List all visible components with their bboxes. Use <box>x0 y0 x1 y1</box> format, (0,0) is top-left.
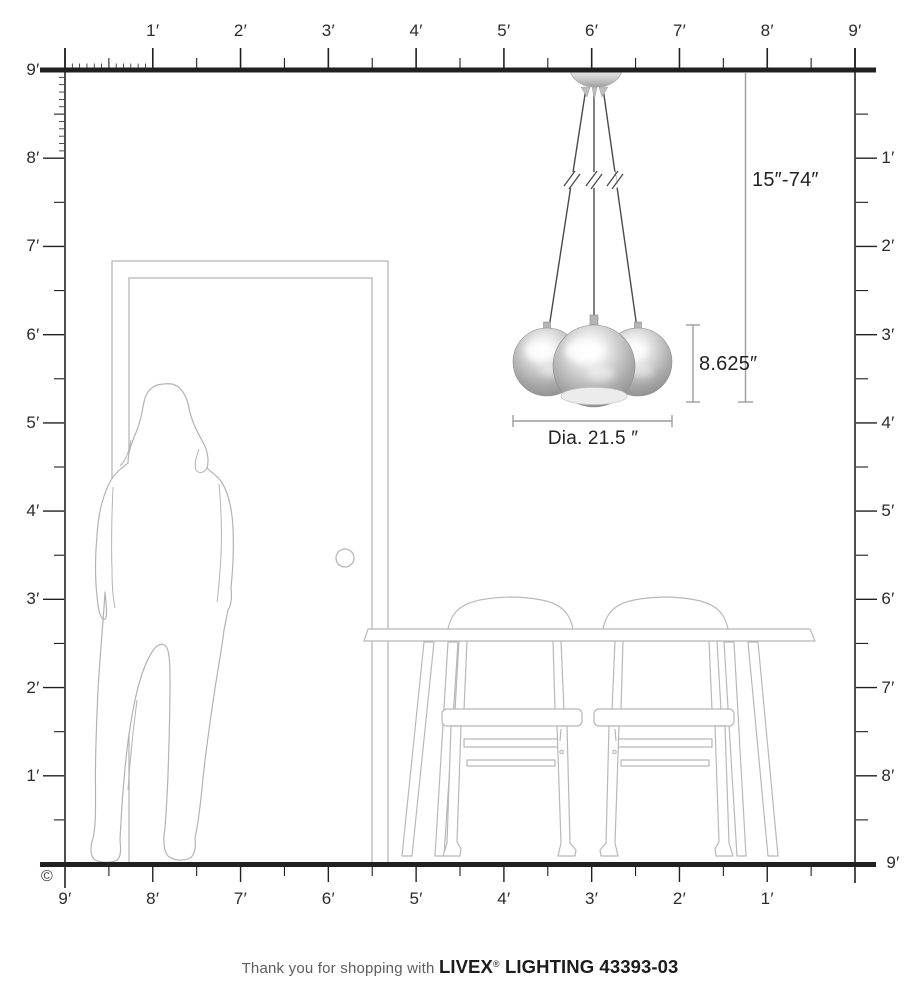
registered-trademark-symbol: ® <box>493 959 500 969</box>
right-ruler-ticks <box>856 114 877 820</box>
right-ruler-label: 1′ <box>881 148 894 168</box>
top-ruler-label: 8′ <box>761 21 774 41</box>
bottom-ruler-label: 3′ <box>585 889 598 909</box>
pendant-fixture <box>513 71 672 407</box>
bottom-ruler-label: 6′ <box>322 889 335 909</box>
door-knob <box>336 549 354 567</box>
bottom-ruler-label: 4′ <box>497 889 510 909</box>
bottom-ruler-label: 9′ <box>58 889 71 909</box>
top-ruler-ticks <box>65 48 855 68</box>
copyright-symbol: © <box>41 868 53 886</box>
pendant-cords <box>549 88 637 328</box>
footer-text: Thank you for shopping with LIVEX® LIGHT… <box>0 956 920 978</box>
left-ruler-label: 5′ <box>26 413 39 433</box>
ceiling-canopy <box>570 71 622 87</box>
left-ruler-label: 1′ <box>26 766 39 786</box>
bottom-ruler-label: 7′ <box>234 889 247 909</box>
right-ruler-label: 3′ <box>881 325 894 345</box>
table-top <box>364 629 815 641</box>
globe-cap <box>590 315 598 325</box>
left-ruler-label: 6′ <box>26 325 39 345</box>
diameter-label: Dia. 21.5 ″ <box>548 428 638 450</box>
globe-diffuser <box>561 388 627 405</box>
top-ruler-label: 6′ <box>585 21 598 41</box>
left-ruler-label: 7′ <box>26 236 39 256</box>
right-ruler-floor-label: 9′ <box>886 853 899 873</box>
left-ruler-label: 8′ <box>26 148 39 168</box>
right-ruler-label: 2′ <box>881 236 894 256</box>
dining-set <box>364 597 815 856</box>
left-ruler-label: 4′ <box>26 501 39 521</box>
left-ruler-label: 2′ <box>26 678 39 698</box>
top-ruler-label: 5′ <box>497 21 510 41</box>
cord-break-marks <box>570 172 615 188</box>
top-ruler-label: 3′ <box>322 21 335 41</box>
footer-prefix: Thank you for shopping with <box>242 960 439 977</box>
hang-range-label: 15″-74″ <box>752 169 819 192</box>
fixture-height-label: 8.625″ <box>699 353 757 376</box>
top-ruler-label: 1′ <box>146 21 159 41</box>
footer-model-number: LIGHTING 43393-03 <box>500 956 679 977</box>
footer-brand: LIVEX <box>439 956 493 977</box>
top-ruler-label: 4′ <box>409 21 422 41</box>
right-ruler-label: 8′ <box>881 766 894 786</box>
top-ruler-label: 7′ <box>673 21 686 41</box>
dimension-diagram-page: 1′2′3′4′5′6′7′8′9′9′8′7′6′5′4′3′2′1′1′2′… <box>0 0 920 1000</box>
bottom-ruler-label: 8′ <box>146 889 159 909</box>
scale-drawing <box>0 0 920 1000</box>
bottom-ruler-label: 5′ <box>409 889 422 909</box>
pendant-globes <box>513 315 672 407</box>
right-ruler-label: 7′ <box>881 678 894 698</box>
top-ruler-label: 9′ <box>848 21 861 41</box>
right-ruler-label: 4′ <box>881 413 894 433</box>
right-ruler-label: 6′ <box>881 589 894 609</box>
left-ruler-ticks <box>43 77 64 820</box>
left-ruler-label: 9′ <box>26 60 39 80</box>
left-ruler-label: 3′ <box>26 589 39 609</box>
bottom-ruler-label: 1′ <box>761 889 774 909</box>
top-ruler-label: 2′ <box>234 21 247 41</box>
right-ruler-label: 5′ <box>881 501 894 521</box>
bottom-ruler-ticks <box>109 867 811 882</box>
bottom-ruler-label: 2′ <box>673 889 686 909</box>
